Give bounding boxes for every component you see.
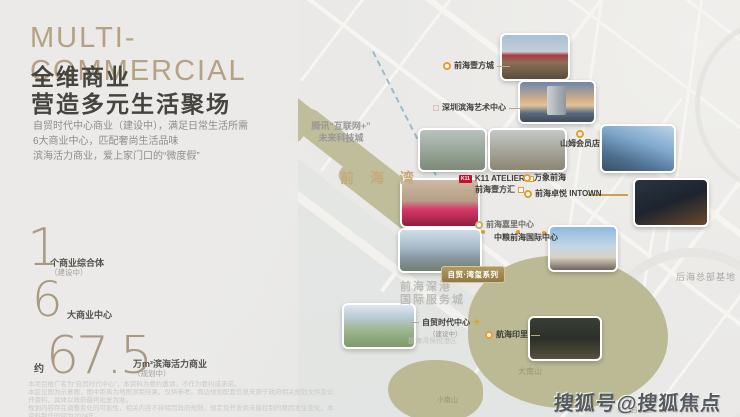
poi-label: K11 ATELIER <box>475 175 525 183</box>
intro-paragraph: 自贸时代中心商业（建设中），满足日常生活所需 6大商业中心，匹配奢尚生活品味 滨… <box>33 119 248 164</box>
page-title-cn-line2: 营造多元生活聚场 <box>31 85 231 119</box>
square-icon <box>433 105 439 111</box>
photo-cofco-center <box>548 225 618 272</box>
poi-label: 山姆会员店 <box>560 140 600 148</box>
poi-zimao-shidai-center: 自贸时代中心 ✦ <box>411 318 481 327</box>
area-label-tencent-line1: 腾讯“互联网+” <box>300 120 382 132</box>
project-series-badge: 自贸·湾玺系列 <box>441 266 505 283</box>
connector-dash <box>464 190 472 191</box>
stat-label-3: 万m²滨海活力商业 （规划中） <box>133 359 207 379</box>
stat-label-2: 大商业中心 <box>67 310 112 320</box>
area-label-houhai: 后海总部基地 <box>676 270 736 283</box>
stat-prefix-3: 约 <box>34 360 44 375</box>
promo-map-page: 前海壹方城 深圳滨海艺术中心 山姆会员店 K11 K11 ATELIER 前海壹… <box>0 0 740 417</box>
disclaimer-text: 本项目推广名为“自贸时代中心”，本资料为要约邀请，不作为要约或承诺。 本区位图为… <box>28 381 336 417</box>
poi-kerry-center: 前海嘉里中心 <box>475 221 534 229</box>
ring-icon <box>443 62 451 70</box>
photo-qianhai-yifangcheng <box>500 33 570 81</box>
poi-zhuoyue-intown: 前海卓悦 INTOWN <box>524 190 602 198</box>
poi-sams-club: 山姆会员店 <box>560 130 600 148</box>
disclaimer-line-1: 本项目推广名为“自贸时代中心”，本资料为要约邀请，不作为要约或承诺。 <box>28 381 336 389</box>
poi-cofco-center: 中粮前海国际中心 <box>494 234 558 242</box>
photo-intown-night <box>633 178 709 227</box>
sohu-watermark: 搜狐号@搜狐焦点来宾站 <box>551 387 740 417</box>
area-label-baoshui: 前海湾保税港区 <box>408 336 457 346</box>
poi-qianhai-yifangcheng: 前海壹方城 <box>443 62 510 70</box>
ring-icon <box>523 174 531 182</box>
photo-sams-club <box>600 124 676 173</box>
poi-qianhai-yifanghui: 前海壹方汇 <box>464 186 524 194</box>
poi-hanghai-yinli: 航海印里 <box>485 331 540 339</box>
connector-dash <box>497 66 510 67</box>
area-label-tencent: 腾讯“互联网+” 未来科技城 <box>300 120 382 144</box>
connector-dash <box>411 322 419 323</box>
poi-label: 深圳滨海艺术中心 <box>442 104 506 112</box>
station-dot <box>481 230 485 234</box>
connector-dash <box>509 108 522 109</box>
ring-icon <box>576 130 584 138</box>
area-label-service-city: 前海深港 国际服务城 <box>400 281 465 307</box>
k11-logo: K11 <box>459 175 472 183</box>
area-label-mt-xiaonan: 小南山 <box>437 395 458 405</box>
photo-binhai-art-center <box>518 80 596 124</box>
poi-label: 中粮前海国际中心 <box>494 234 558 242</box>
poi-label: 前海卓悦 INTOWN <box>535 190 602 198</box>
poi-label: 前海嘉里中心 <box>486 221 534 229</box>
connector-dash <box>531 335 540 336</box>
poi-label: 航海印里 <box>496 331 528 339</box>
info-panel: MULTI-COMMERCIAL 全维商业 营造多元生活聚场 自贸时代中心商业（… <box>0 0 310 417</box>
curved-road <box>695 15 740 195</box>
tower-silhouette <box>547 86 566 115</box>
poi-label: 自贸时代中心 <box>422 319 470 327</box>
intro-line-2: 6大商业中心，匹配奢尚生活品味 <box>33 134 248 149</box>
poi-label: 前海壹方城 <box>454 62 494 70</box>
disclaimer-line-3: 规划内容存在调整变化的可能性，相关内容不排除因政府规划、规定及开发商未能控制的原… <box>28 405 336 417</box>
ring-icon <box>485 331 493 339</box>
intro-line-3: 滨海活力商业，爱上家门口的“微度假” <box>33 149 248 164</box>
photo-aerial-render-1 <box>418 128 487 172</box>
poi-label: 万象前海 <box>534 174 566 182</box>
area-label-qianhai-bay: 前 海 湾 <box>340 168 420 188</box>
intro-line-1: 自贸时代中心商业（建设中），满足日常生活所需 <box>33 119 248 134</box>
area-label-mt-danan: 大南山 <box>518 366 542 377</box>
stat-label-1-text: 个商业综合体 <box>50 258 104 268</box>
area-label-service-city-line2: 国际服务城 <box>400 294 465 307</box>
ring-icon <box>475 221 483 229</box>
stat-label-3-text: 万m²滨海活力商业 <box>133 359 207 369</box>
ring-icon <box>524 190 532 198</box>
stat-note-3: （规划中） <box>133 369 207 379</box>
photo-green-aerial <box>342 303 416 349</box>
poi-label: 前海壹方汇 <box>475 186 515 194</box>
star-icon: ✦ <box>473 318 481 327</box>
poi-wanxiang-qianhai: 万象前海 <box>523 174 566 182</box>
photo-aerial-render-2 <box>488 128 567 172</box>
disclaimer-line-2: 本区位图为示意图，图中距离为地图测距结果，仅供参考。周边规划配套信息来源于政府相… <box>28 389 336 405</box>
mountain-xiaonan <box>388 360 483 417</box>
area-label-tencent-line2: 未来科技城 <box>300 132 382 144</box>
poi-binhai-art-center: 深圳滨海艺术中心 <box>433 104 522 112</box>
stat-value-2: 6 <box>32 276 62 324</box>
